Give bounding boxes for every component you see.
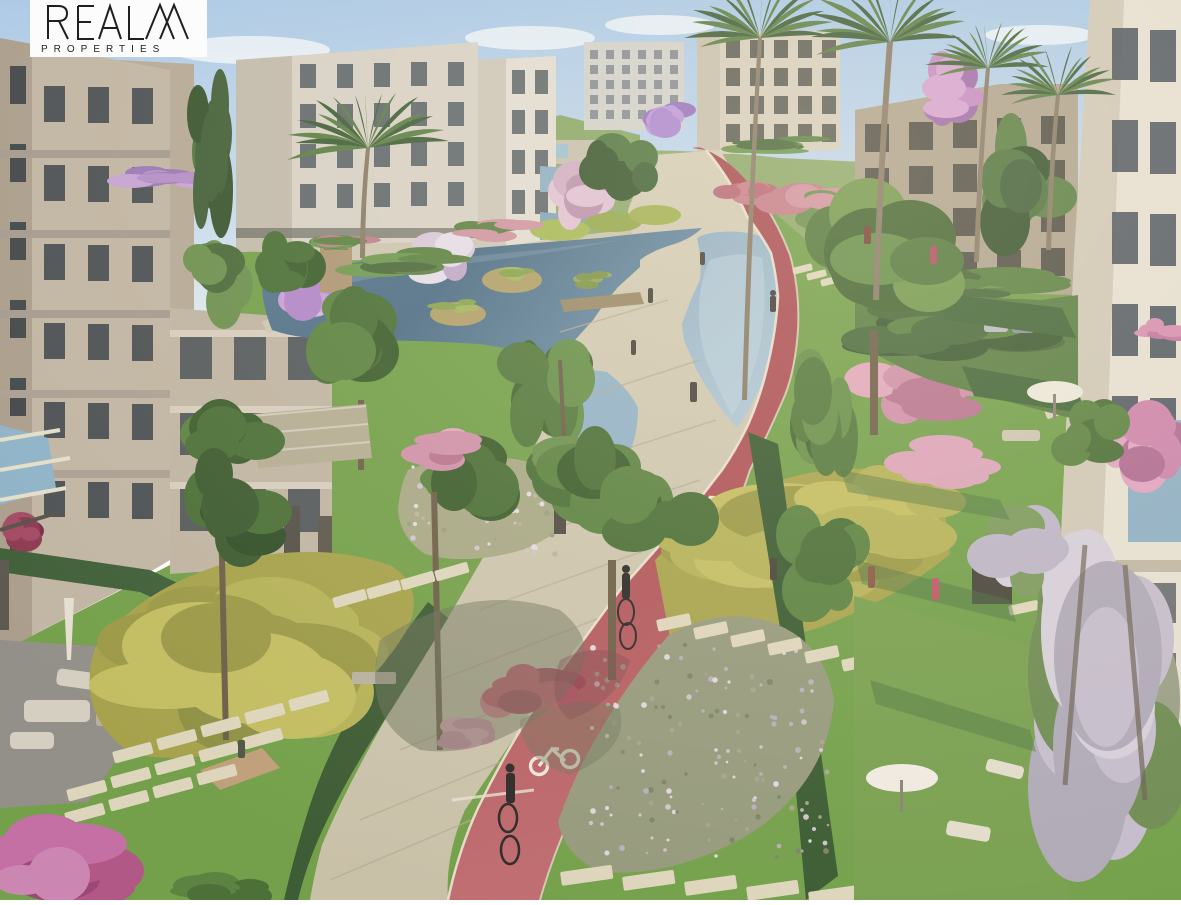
svg-text:PROPERTIES: PROPERTIES [41, 44, 165, 55]
